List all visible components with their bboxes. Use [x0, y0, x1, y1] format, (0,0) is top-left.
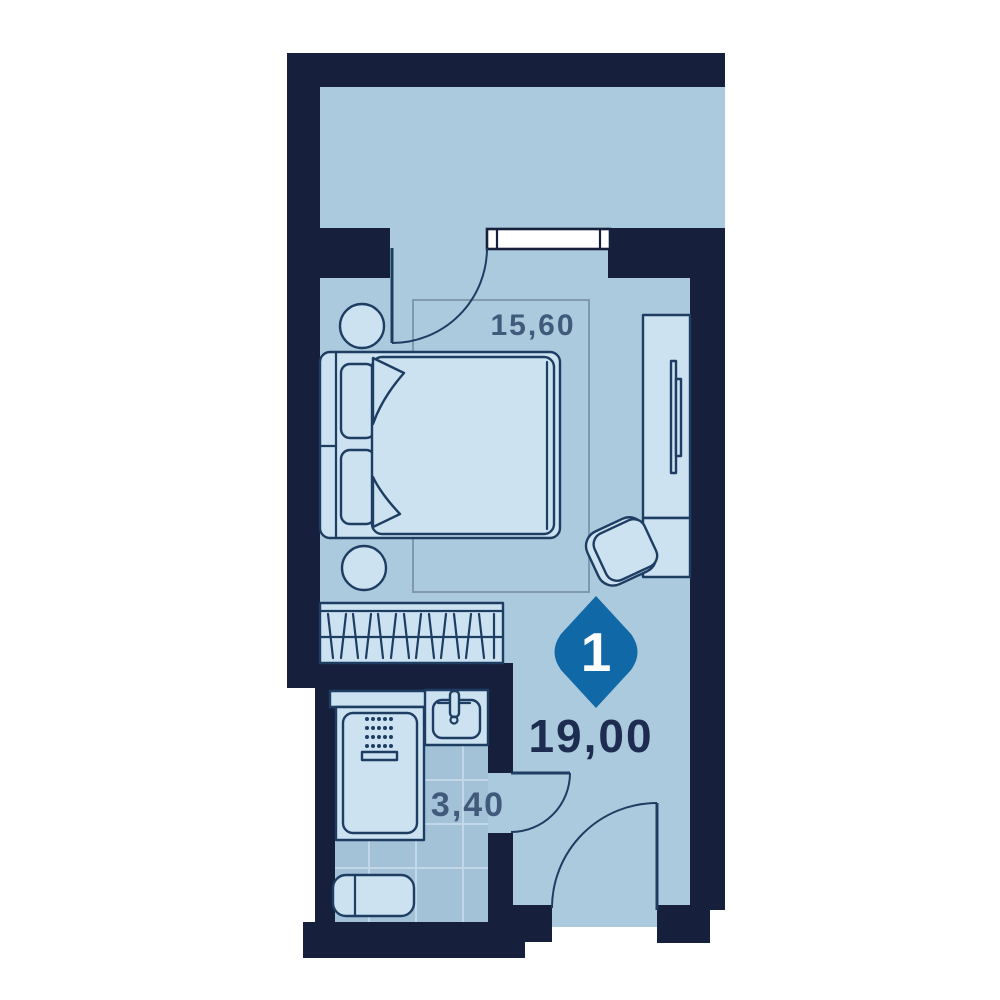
bedside-stool-top [340, 304, 384, 348]
bed-pillow-bottom [341, 450, 375, 524]
unit-badge-number: 1 [581, 621, 612, 683]
wall-bathroom-bottom [303, 922, 525, 958]
shower-top-panel [330, 691, 428, 707]
bed-blanket [372, 357, 554, 534]
bedside-stool-bottom [342, 546, 386, 590]
wall-entry-right [657, 905, 710, 943]
tv-screen [676, 379, 681, 456]
wall-entry-left [500, 905, 552, 942]
entrance-doorway [552, 905, 657, 927]
faucet-spout [450, 691, 459, 717]
shower-slot [362, 752, 397, 760]
sink [425, 690, 488, 745]
wardrobe-hangers [320, 603, 503, 663]
floorplan-svg: 15,60 3,40 19,00 1 [0, 0, 1000, 1000]
bed-pillow-top [341, 364, 375, 438]
balcony-doorway [390, 228, 487, 248]
bathroom-area-label: 3,40 [431, 786, 505, 824]
wall-right [690, 228, 725, 910]
shower-tray [343, 713, 417, 833]
window-frame [487, 229, 610, 249]
double-bed [320, 352, 560, 538]
balcony-floor [320, 87, 725, 228]
toilet-body [333, 875, 414, 916]
floorplan-page: 15,60 3,40 19,00 1 [0, 0, 1000, 1000]
wall-left [287, 53, 320, 688]
total-area-label: 19,00 [528, 710, 653, 762]
balcony-window [487, 229, 610, 249]
wall-bathroom-top [315, 663, 513, 690]
shower-cabin [330, 691, 428, 840]
wall-top [287, 53, 725, 87]
bedroom-area-label: 15,60 [490, 309, 575, 342]
desk-top-section [643, 315, 690, 518]
wall-divider-left-pier [320, 228, 390, 278]
toilet [333, 875, 414, 916]
